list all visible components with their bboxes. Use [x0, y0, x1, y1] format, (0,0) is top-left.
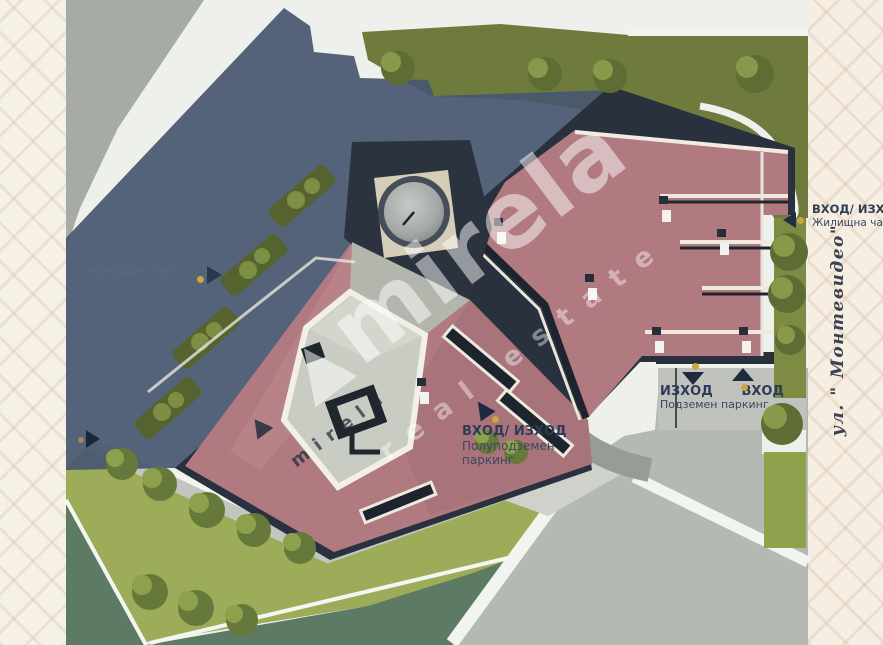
grass-strip-right: [764, 452, 806, 548]
arrow-down-icon: [682, 372, 704, 385]
street-name-montevideo: ул. " Монтевидео": [828, 224, 848, 436]
marker-dot-left-street: [78, 437, 84, 443]
entrance-dot-right: [797, 217, 804, 224]
site-plan-rendering: [0, 0, 883, 645]
site-plan-image: mirela real estate mirela ВХОД/ ИЗХОД Жи…: [0, 0, 883, 645]
arrow-right-icon-2: [86, 430, 100, 448]
entrance-dot-semi: [492, 416, 499, 423]
garage-dot-entrance: [741, 384, 748, 391]
entrance-dot-left: [197, 276, 204, 283]
arrow-up-icon-2: [732, 368, 754, 381]
arrow-right-icon: [207, 266, 222, 284]
garage-dot-exit: [692, 363, 699, 370]
arrow-left-icon: [783, 212, 796, 228]
